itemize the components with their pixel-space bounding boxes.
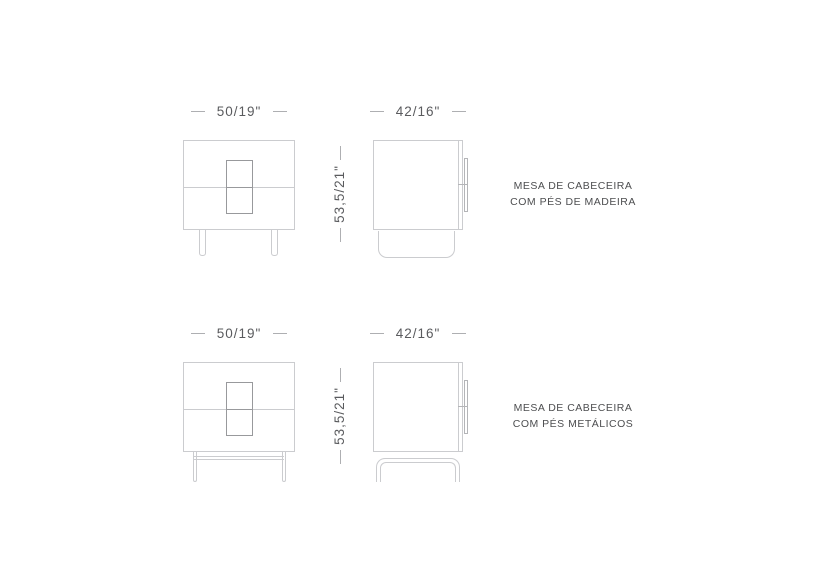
width-dimension: 50/19" <box>183 325 295 341</box>
furniture-spec-sheet: 50/19" 53,5/21" 42/16" MESA DE CABECEIRA… <box>0 0 820 578</box>
product-label-line2: COM PÉS DE MADEIRA <box>473 194 673 210</box>
product-label-line1: MESA DE CABECEIRA <box>473 178 673 194</box>
metal-leg-crossbar <box>194 456 284 460</box>
side-view-outline <box>373 140 459 230</box>
dimension-dash-right <box>273 111 287 112</box>
dimension-dash-left <box>370 333 384 334</box>
handle-mid-tick <box>458 184 468 185</box>
handle-divider-line <box>227 187 252 188</box>
dimension-dash-right <box>452 111 466 112</box>
handle-mid-tick <box>458 406 468 407</box>
depth-dimension-text: 42/16" <box>396 326 441 341</box>
metal-sled-leg-inner <box>380 462 456 482</box>
side-view-outline <box>373 362 459 452</box>
product-label: MESA DE CABECEIRA COM PÉS METÁLICOS <box>473 400 673 432</box>
depth-dimension: 42/16" <box>368 325 468 341</box>
handle-divider-line <box>227 409 252 410</box>
drawer-handle-side <box>464 158 468 212</box>
dimension-dash-right <box>452 333 466 334</box>
side-front-panel-edge <box>458 362 463 452</box>
depth-dimension: 42/16" <box>368 103 468 119</box>
product-label: MESA DE CABECEIRA COM PÉS DE MADEIRA <box>473 178 673 210</box>
drawer-handle-front <box>226 382 253 436</box>
variant-metal-legs: 50/19" 53,5/21" 42/16" MESA DE CABECEIRA <box>0 222 820 512</box>
dimension-dash-right <box>273 333 287 334</box>
dimension-dash-left <box>191 111 205 112</box>
dimension-dash-left <box>191 333 205 334</box>
drawer-handle-side <box>464 380 468 434</box>
width-dimension: 50/19" <box>183 103 295 119</box>
side-front-panel-edge <box>458 140 463 230</box>
width-dimension-text: 50/19" <box>217 326 262 341</box>
drawer-handle-front <box>226 160 253 214</box>
depth-dimension-text: 42/16" <box>396 104 441 119</box>
dimension-dash-bottom <box>340 450 341 464</box>
dimension-dash-left <box>370 111 384 112</box>
product-label-line1: MESA DE CABECEIRA <box>473 400 673 416</box>
height-dimension: 53,5/21" <box>333 368 347 464</box>
width-dimension-text: 50/19" <box>217 104 262 119</box>
product-label-line2: COM PÉS METÁLICOS <box>473 416 673 432</box>
